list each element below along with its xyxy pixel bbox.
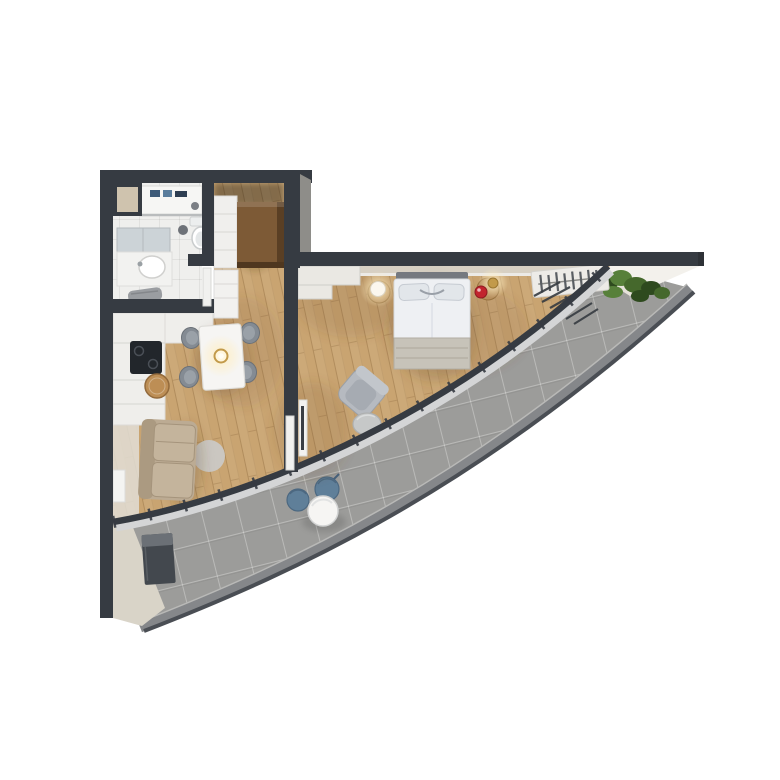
cooktop [130,341,162,374]
hall-wardrobe [237,202,284,268]
wall-top-block [100,170,312,183]
sink-bowl [139,256,165,278]
tall-cabinet [214,270,238,318]
hedge-bush [631,290,649,302]
shower-bottle [175,191,187,197]
shower-bottle [163,190,172,197]
trash-bin [178,225,188,235]
mug-highlight [477,288,481,292]
shower-head [191,202,199,210]
double-bed [389,272,477,382]
bedside-lamp-right [488,278,498,288]
foot-blanket [394,338,470,369]
vanity-sink [117,228,172,286]
wall-top-main [284,252,702,266]
wall-bathroom-bottom [113,299,214,313]
wall-bathroom-jog [188,254,214,266]
shower-bottle [150,190,160,197]
wall-end-cap [698,252,704,266]
bedside-left [360,271,396,307]
red-mug [475,286,487,298]
planter-box [141,533,175,585]
pendant-bulb [218,353,224,359]
step-wall [298,285,332,299]
wall-radiator [113,470,125,502]
wall-left [100,170,113,618]
tv-screen [301,406,304,450]
bathroom-door [203,268,211,306]
step-wall [298,266,360,285]
hedge-bush [654,287,670,299]
shower [140,186,202,215]
bedside-lamp-left [371,282,386,297]
faucet [138,262,143,267]
wall-bathroom-right [202,183,214,262]
sofa [137,419,203,509]
floor-plan-svg [0,0,780,780]
floor-plan-canvas [0,0,780,780]
pocket-door [286,416,294,470]
terrace-chair [287,489,309,511]
floor-light-strip [113,416,139,522]
sofa-cushion [151,462,194,498]
niche [117,187,138,212]
wall-block-face [300,174,311,262]
